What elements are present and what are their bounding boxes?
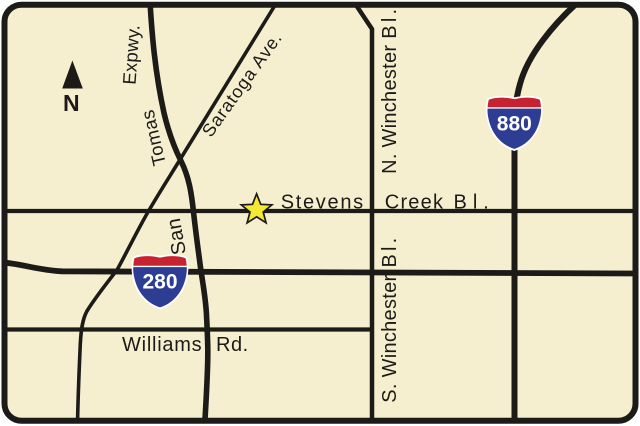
svg-text:Rd.: Rd. [216,334,249,356]
svg-text:Bl.: Bl. [379,235,401,268]
svg-text:Stevens: Stevens [281,192,365,214]
svg-text:280: 280 [142,271,177,294]
svg-text:Bl.: Bl. [379,6,401,39]
svg-text:N. Winchester: N. Winchester [379,45,401,174]
svg-text:Creek: Creek [385,192,444,214]
svg-text:Expwy.: Expwy. [119,24,144,85]
svg-text:Williams: Williams [122,334,202,356]
svg-text:Bl.: Bl. [454,192,495,214]
svg-text:880: 880 [497,112,532,135]
svg-text:N: N [63,90,80,116]
svg-text:S. Winchester: S. Winchester [379,275,401,403]
